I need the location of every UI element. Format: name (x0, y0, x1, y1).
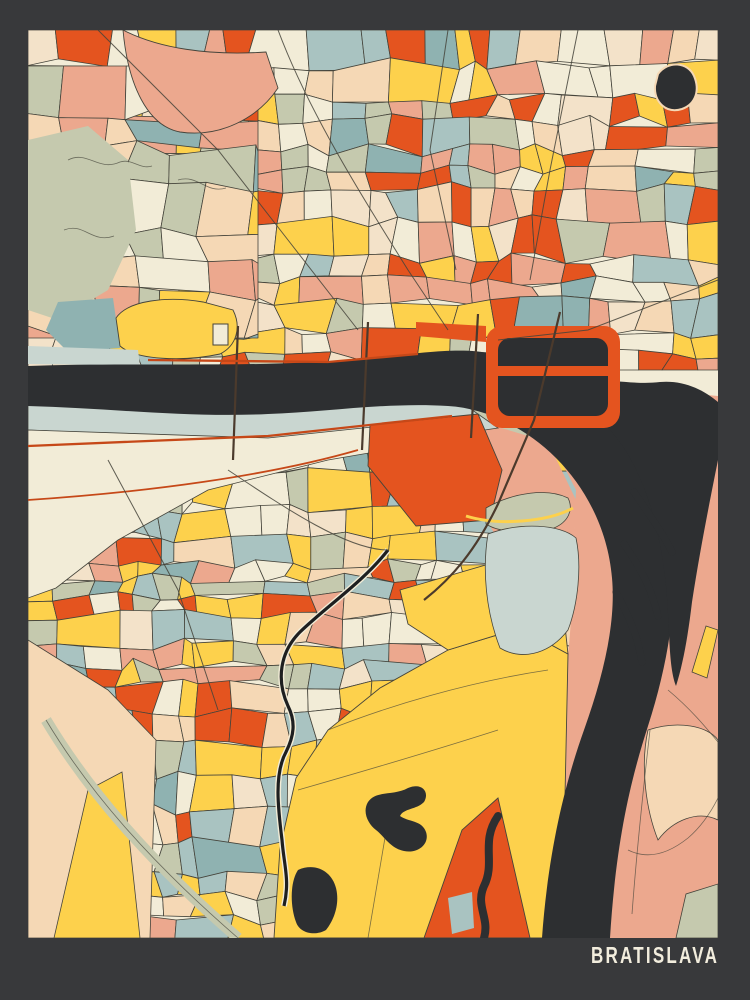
bottomleft-dark-blob (292, 867, 338, 933)
map-block (192, 641, 233, 668)
map-block (59, 66, 127, 120)
map-block (691, 335, 718, 359)
map-block (585, 189, 641, 225)
map-block (609, 93, 639, 126)
map-block (308, 689, 342, 712)
map-block (308, 468, 372, 513)
map-block (326, 172, 371, 190)
map-block (196, 182, 253, 236)
map-block (120, 610, 153, 650)
map-block (588, 149, 638, 166)
map-block (452, 182, 472, 227)
map-canvas (28, 30, 718, 938)
wedge-teal-sliver (448, 892, 474, 934)
castle-building (213, 324, 228, 345)
map-block (362, 275, 392, 305)
map-block (274, 216, 334, 256)
map-block (558, 30, 610, 66)
map-block (332, 102, 366, 119)
map-block (563, 166, 588, 190)
map-block (687, 221, 718, 264)
map-block (695, 30, 718, 60)
map-block (556, 219, 610, 263)
map-block (696, 358, 718, 370)
map-block (342, 618, 364, 649)
map-block (388, 275, 430, 303)
map-block (388, 531, 437, 560)
map-block (637, 184, 666, 225)
map-block (275, 94, 305, 124)
map-block (311, 532, 346, 571)
map-block (604, 30, 643, 66)
map-block (425, 30, 460, 70)
map-block (285, 328, 303, 355)
map-block (227, 593, 263, 618)
map-block (302, 334, 331, 354)
map-block (536, 61, 598, 97)
map-block (191, 581, 266, 595)
map-block (516, 30, 562, 64)
map-block (190, 775, 235, 812)
map-block (161, 539, 174, 565)
map-block (694, 148, 718, 174)
bratislava-abstract-map (28, 30, 718, 938)
map-block (28, 601, 57, 621)
map-block (83, 647, 122, 671)
map-block (28, 30, 58, 66)
map-block (666, 123, 718, 148)
map-block (231, 618, 261, 645)
map-block (365, 172, 420, 190)
map-block (306, 30, 365, 71)
map-poster: BRATISLAVA (0, 0, 750, 1000)
port-orange-pier (498, 366, 608, 376)
kuchajda-lake (655, 64, 697, 110)
map-block (135, 256, 210, 292)
port-dark-basin (498, 338, 608, 416)
poster-title: BRATISLAVA (591, 944, 719, 967)
map-block (28, 66, 64, 118)
map-block (585, 166, 636, 191)
map-block (229, 708, 268, 748)
map-block (362, 613, 391, 649)
